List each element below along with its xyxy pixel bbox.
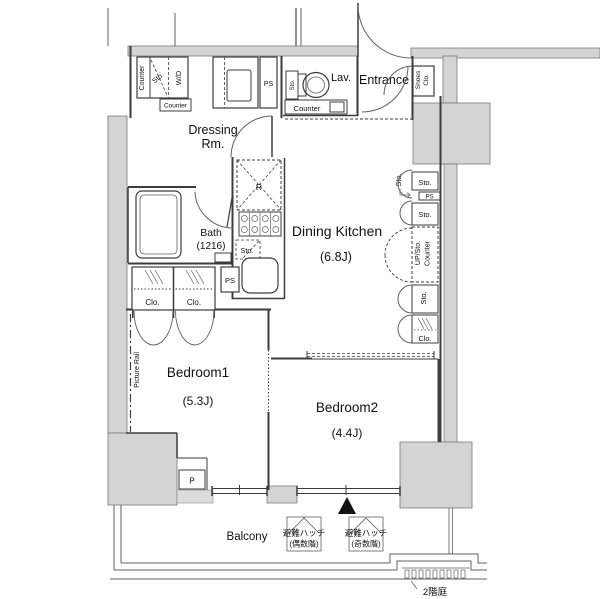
top-wall-right (411, 48, 600, 58)
right-block-lower (400, 442, 472, 508)
window-pier (267, 486, 297, 503)
dressing-label-2: Rm. (202, 137, 225, 151)
vanity-bowl (227, 70, 251, 101)
bathroom: Bath (1216) (128, 187, 233, 264)
clo-right-label: Clo. (418, 334, 431, 343)
sto-box-1-label: Sto. (418, 178, 431, 187)
right-band-lower (444, 164, 457, 442)
lav-sink (330, 102, 344, 112)
bedroom1-closets: Clo. Clo. PS (132, 267, 239, 345)
bedroom2-size-label: (4.4J) (332, 426, 363, 440)
lav-label: Lav. (331, 72, 351, 84)
dining-kitchen-label: Dining Kitchen (292, 223, 382, 239)
garden-label-leader (411, 581, 417, 589)
kitchen-sink (242, 258, 278, 293)
toilet-sto-label: Sto. (290, 79, 296, 90)
dining-kitchen: Dining Kitchen (6.8J) (292, 223, 382, 264)
direction-triangle-marker (338, 497, 356, 514)
up-sto-label: UP/Sto. (415, 241, 422, 265)
up-counter-label: Counter (425, 240, 432, 266)
hatch-even-label-1: 避難ハッチ (283, 528, 326, 538)
bedroom2-label: Bedroom2 (316, 400, 378, 415)
sto-box-3-label: Sto. (419, 291, 428, 304)
storage-door-arc-2 (400, 201, 412, 225)
hatch-odd-label-1: 避難ハッチ (345, 528, 388, 538)
bath-label: Bath (200, 227, 222, 239)
bath-step (215, 253, 231, 262)
evacuation-hatch-even: 避難ハッチ (偶数階) (283, 517, 326, 551)
wd-label: W/D (174, 70, 183, 85)
left-wall-band (108, 116, 127, 433)
p-label: P (189, 477, 194, 486)
kitchen: R Sto. (232, 158, 285, 299)
balcony-label: Balcony (227, 531, 268, 543)
ps-top-label: PS (264, 81, 274, 88)
evacuation-hatch-odd: 避難ハッチ (奇数階) (345, 517, 388, 551)
bedroom1-window (212, 485, 267, 496)
exterior-reference-lines (108, 8, 301, 46)
bedroom1-label: Bedroom1 (167, 365, 229, 380)
lav-counter-label: Counter (294, 104, 321, 113)
front-door-arc (358, 5, 411, 58)
counter-tag-label: Counter (164, 103, 188, 110)
balcony: Balcony 避難ハッチ (偶数階) 避難ハッチ (奇数階) (110, 505, 487, 598)
second-floor-garden: 2階庭 (402, 568, 470, 598)
shoes-label-2: Clo. (423, 74, 430, 86)
sto-box-2-label: Sto. (418, 210, 431, 219)
sill-left (177, 490, 213, 503)
garden-label: 2階庭 (423, 586, 448, 598)
floor-plan: Counter Sto. W/D Counter PS Dressing Rm.… (0, 0, 600, 599)
right-block-upper (413, 103, 490, 164)
top-wall-left (128, 46, 358, 56)
closet-2-label: Clo. (187, 298, 201, 307)
floor-plan-page: Counter Sto. W/D Counter PS Dressing Rm.… (0, 0, 600, 599)
closet-1-label: Clo. (145, 298, 159, 307)
toilet-bowl (303, 73, 329, 98)
dressing-room: Counter Sto. W/D Counter PS Dressing Rm. (137, 57, 277, 157)
garden-fence-teeth (405, 570, 465, 578)
counter-left-label: Counter (139, 65, 146, 91)
toilet-seat (298, 74, 306, 96)
storage-bifold-arc-1 (385, 228, 412, 255)
shoes-label-1: Shoes (415, 70, 422, 89)
ps-mid-label: PS (225, 276, 235, 285)
lavatory: Sto. Lav. Counter (285, 71, 351, 114)
entrance-label: Entrance (359, 73, 409, 87)
storage-door-arc-4 (398, 315, 412, 343)
windows (212, 485, 400, 514)
storage-column: Sto. PS Sto. UP/Sto. Counter Sto. Clo. S… (385, 170, 440, 343)
bottom-left-block (108, 433, 177, 505)
closet-door-arcs (133, 310, 214, 345)
picture-rail-label: Picture Rail (134, 352, 141, 388)
ps-right-label: PS (425, 195, 433, 201)
bedroom2-window (297, 485, 400, 496)
dining-kitchen-size: (6.8J) (320, 250, 352, 264)
bedroom1-size-label: (5.3J) (183, 394, 214, 408)
refrigerator-label: R (256, 182, 262, 192)
bath-size-label: (1216) (197, 241, 226, 252)
right-band-upper (443, 56, 457, 103)
hatch-odd-label-2: (奇数階) (351, 539, 381, 549)
bedroom2: Bedroom2 (4.4J) (316, 400, 378, 440)
dressing-label-1: Dressing (188, 123, 237, 137)
bathtub (136, 191, 181, 258)
storage-door-arc-3 (398, 285, 412, 313)
storage-bifold-arc-2 (385, 255, 412, 282)
hatch-even-label-2: (偶数階) (289, 539, 319, 549)
